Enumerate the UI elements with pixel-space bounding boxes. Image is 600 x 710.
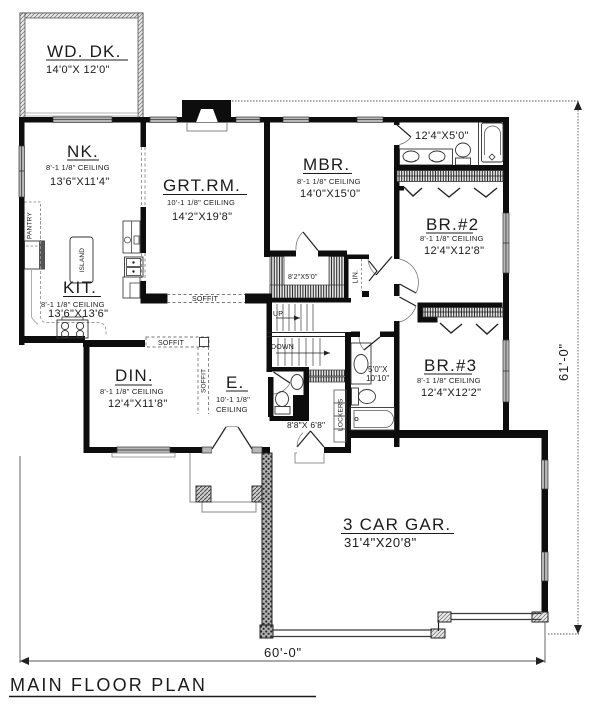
svg-text:8'8"X 6'8": 8'8"X 6'8" (287, 420, 325, 430)
svg-text:13'6"X13'6": 13'6"X13'6" (48, 308, 108, 320)
svg-text:LOCKERS: LOCKERS (338, 398, 345, 431)
svg-text:E.: E. (226, 373, 244, 392)
svg-text:8'2"X5'0": 8'2"X5'0" (288, 274, 318, 281)
svg-text:LIN.: LIN. (353, 270, 360, 284)
svg-text:12'4"X5'0": 12'4"X5'0" (415, 130, 469, 142)
svg-text:PANTRY: PANTRY (27, 212, 34, 239)
svg-text:14'0"X 12'0": 14'0"X 12'0" (46, 64, 110, 76)
svg-text:MBR.: MBR. (303, 155, 350, 174)
svg-text:KIT.: KIT. (63, 278, 97, 297)
svg-text:SOFFIT: SOFFIT (201, 369, 208, 393)
svg-text:WD. DK.: WD. DK. (47, 42, 122, 61)
svg-text:8'-1 1/8" CEILING: 8'-1 1/8" CEILING (46, 163, 110, 172)
svg-text:14'0"X15'0": 14'0"X15'0" (300, 188, 360, 200)
svg-text:10'-1 1/8" CEILING: 10'-1 1/8" CEILING (167, 198, 235, 207)
svg-text:31'4"X20'8": 31'4"X20'8" (344, 535, 417, 550)
svg-text:DIN.: DIN. (115, 366, 154, 385)
svg-text:SOFFIT: SOFFIT (158, 340, 185, 347)
svg-text:13'6"X11'4": 13'6"X11'4" (50, 176, 110, 188)
svg-text:8'-1 1/8" CEILING: 8'-1 1/8" CEILING (297, 177, 361, 186)
svg-text:BR.#3: BR.#3 (424, 356, 477, 375)
svg-text:8'-1 1/8" CEILING: 8'-1 1/8" CEILING (100, 387, 164, 396)
svg-text:MAIN FLOOR PLAN: MAIN FLOOR PLAN (10, 675, 207, 695)
svg-text:12'4"X11'8": 12'4"X11'8" (108, 398, 168, 410)
svg-text:12'4"X12'2": 12'4"X12'2" (421, 387, 481, 399)
svg-text:BR.#2: BR.#2 (426, 215, 479, 234)
svg-text:SOFFIT: SOFFIT (192, 296, 219, 303)
svg-text:DOWN: DOWN (271, 344, 294, 351)
svg-text:61'-0": 61'-0" (556, 343, 571, 381)
svg-text:14'2"X19'8": 14'2"X19'8" (172, 211, 232, 223)
svg-text:8'-1 1/8" CEILING: 8'-1 1/8" CEILING (420, 234, 484, 243)
svg-text:NK.: NK. (67, 142, 99, 161)
svg-text:10'10": 10'10" (366, 374, 389, 383)
svg-text:UP: UP (273, 311, 283, 318)
svg-text:10'-1 1/8": 10'-1 1/8" (216, 395, 250, 404)
svg-text:ISLAND: ISLAND (79, 248, 86, 273)
svg-text:CEILING: CEILING (216, 405, 248, 414)
svg-text:GRT.RM.: GRT.RM. (163, 176, 241, 195)
svg-text:3 CAR GAR.: 3 CAR GAR. (343, 515, 451, 534)
svg-text:60'-0": 60'-0" (264, 645, 302, 660)
svg-text:12'4"X12'8": 12'4"X12'8" (424, 245, 484, 257)
svg-text:5'0"X: 5'0"X (368, 365, 388, 374)
svg-text:8'-1 1/8" CEILING: 8'-1 1/8" CEILING (417, 376, 481, 385)
